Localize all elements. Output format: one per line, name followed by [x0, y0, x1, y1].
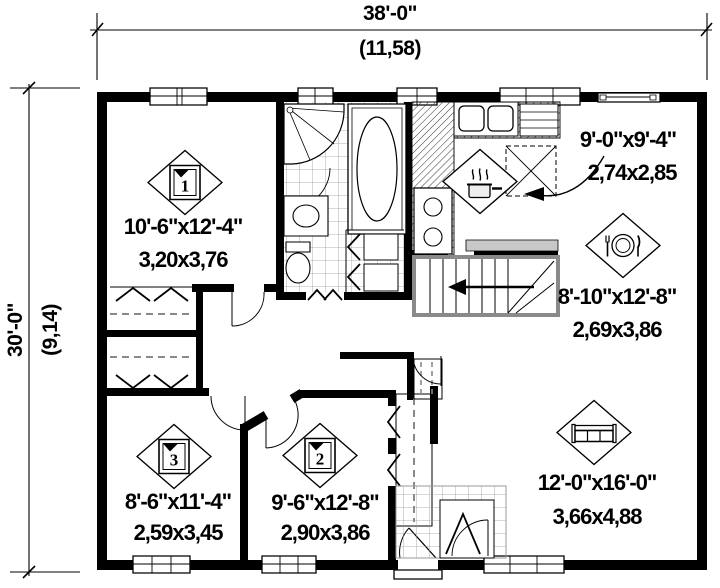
kitchen-size-metric: 2,74x2,85 [588, 160, 677, 186]
bedroom-2-size-metric: 2,90x3,86 [281, 520, 370, 546]
kitchen-shelves [520, 104, 558, 136]
bedroom-number: 3 [170, 450, 179, 470]
entry [396, 486, 506, 558]
dining-room-symbol [585, 213, 661, 284]
bedroom-number: 1 [181, 176, 190, 196]
bifold-door-chevron [116, 375, 150, 388]
bedroom-2-size-imperial: 9'-6"x12'-8" [271, 490, 378, 516]
shelf-detail [598, 93, 660, 102]
living-room-size-imperial: 12'-0"x16'-0" [538, 470, 657, 496]
bedroom-3-size-imperial: 8'-6"x11'-4" [125, 489, 231, 515]
bedroom1-door [232, 292, 264, 326]
window-bedroom1 [150, 88, 207, 105]
bedroom-1-symbol: 1 [147, 150, 223, 221]
vanity-sink [284, 196, 328, 236]
living-room-symbol [556, 400, 632, 471]
overall-width-imperial: 38'-0" [363, 2, 417, 26]
toilet [286, 242, 310, 283]
stairs [414, 257, 558, 315]
bedroom3-door [211, 396, 245, 430]
bedroom-3-symbol: 3 [136, 424, 212, 495]
window-living [484, 556, 564, 573]
living-door [413, 356, 441, 386]
kitchen-size-imperial: 9'-0"x9'-4" [580, 127, 676, 153]
bifold-door-chevron [388, 454, 400, 486]
sofa-icon [556, 400, 632, 466]
bedroom-2-symbol: 2 [282, 423, 358, 494]
kitchen-sink [454, 102, 518, 136]
overall-width-metric: (11,58) [359, 37, 421, 61]
dining-room-size-metric: 2,69x3,86 [573, 317, 662, 343]
dining-place-setting-icon [585, 213, 661, 279]
bifold-door-chevron [154, 288, 188, 301]
window-bedroom2 [262, 556, 316, 573]
kitchen-bar-counter [466, 240, 558, 251]
hall-closets [110, 287, 194, 391]
bedroom-number: 2 [316, 449, 325, 469]
overall-height-metric: (9,14) [39, 304, 63, 356]
window-bedroom3 [133, 556, 190, 573]
bedroom-1-size-metric: 3,20x3,76 [139, 247, 228, 273]
bifold-door-chevron [116, 288, 150, 301]
floor-plan-page: 1 3 2 [0, 0, 720, 588]
entry-closet [440, 500, 494, 558]
bathroom [284, 102, 406, 300]
bifold-door-chevron [154, 375, 188, 388]
kitchen-symbol [442, 149, 518, 220]
overall-height-imperial: 30'-0" [4, 303, 28, 357]
bifold-door-chevron [388, 406, 400, 438]
dining-room-size-imperial: 8'-10"x12'-8" [558, 284, 677, 310]
bedroom-3-size-metric: 2,59x3,45 [134, 520, 223, 546]
bedroom-1-size-imperial: 10'-6"x12'-4" [124, 214, 243, 240]
cooking-pot-icon [442, 149, 518, 215]
living-room-size-metric: 3,66x4,88 [553, 504, 642, 530]
bathtub [348, 104, 406, 234]
